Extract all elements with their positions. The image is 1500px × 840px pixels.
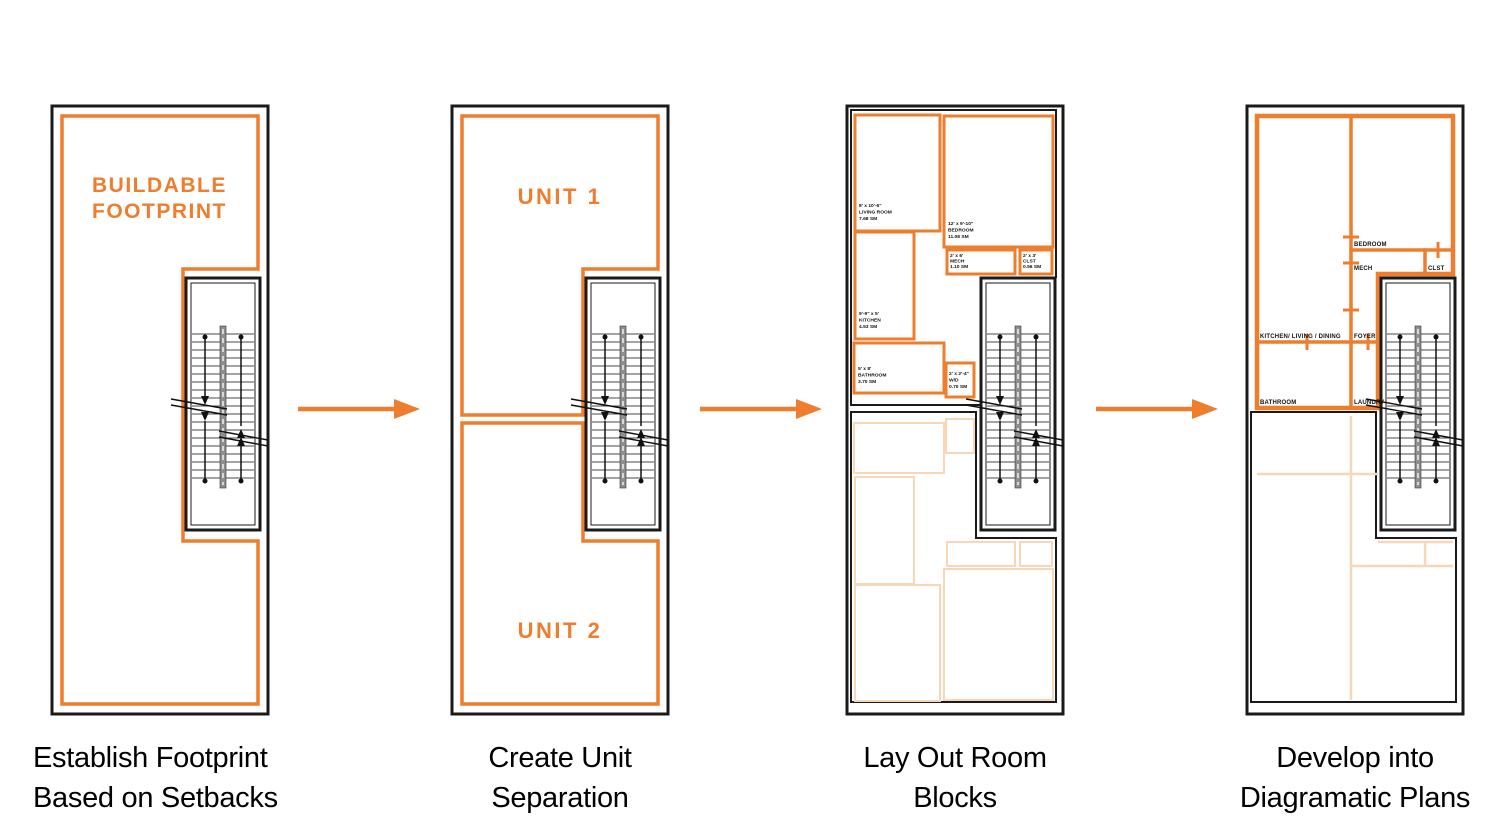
room-block-bedroom bbox=[944, 116, 1053, 247]
mech-label: MECH bbox=[1354, 266, 1372, 272]
clst-label: CLST bbox=[1428, 266, 1445, 272]
panel-room-blocks: 8' x 10'-6" LIVING ROOM 7.68 SM 12' x 9'… bbox=[845, 104, 1065, 716]
unit-separation-plan: UNIT 1 UNIT 2 bbox=[450, 104, 670, 716]
flow-arrow-icon bbox=[298, 397, 420, 421]
caption-establish-footprint: Establish Footprint Based on Setbacks bbox=[33, 738, 313, 818]
caption-create-unit-separation: Create Unit Separation bbox=[450, 738, 670, 818]
design-process-diagram: BUILDABLE FOOTPRINT UNIT 1 UNIT 2 bbox=[0, 0, 1500, 840]
foyer-label: FOYER bbox=[1354, 334, 1376, 340]
laundry-label: LAUNDRY bbox=[1354, 400, 1385, 406]
room-blocks-plan: 8' x 10'-6" LIVING ROOM 7.68 SM 12' x 9'… bbox=[845, 104, 1065, 716]
kitchen-living-dining-label: KITCHEN/ LIVING / DINING bbox=[1260, 334, 1341, 340]
panel-unit-separation: UNIT 1 UNIT 2 bbox=[450, 104, 670, 716]
panel-diagramatic-plan: BEDROOM MECH CLST KITCHEN/ LIVING / DINI… bbox=[1245, 104, 1465, 716]
panel-establish-footprint: BUILDABLE FOOTPRINT bbox=[50, 104, 270, 716]
bedroom-label: BEDROOM bbox=[1354, 242, 1387, 248]
flow-arrow-icon bbox=[1096, 397, 1218, 421]
unit1-label: UNIT 1 bbox=[518, 184, 603, 209]
bathroom-label: BATHROOM bbox=[1260, 400, 1296, 406]
footprint-plan: BUILDABLE FOOTPRINT bbox=[50, 104, 270, 716]
caption-develop-diagramatic-plans: Develop into Diagramatic Plans bbox=[1230, 738, 1480, 818]
caption-lay-out-room-blocks: Lay Out Room Blocks bbox=[845, 738, 1065, 818]
flow-arrow-icon bbox=[700, 397, 822, 421]
unit2-label: UNIT 2 bbox=[518, 618, 603, 643]
diagramatic-plan: BEDROOM MECH CLST KITCHEN/ LIVING / DINI… bbox=[1245, 104, 1465, 716]
